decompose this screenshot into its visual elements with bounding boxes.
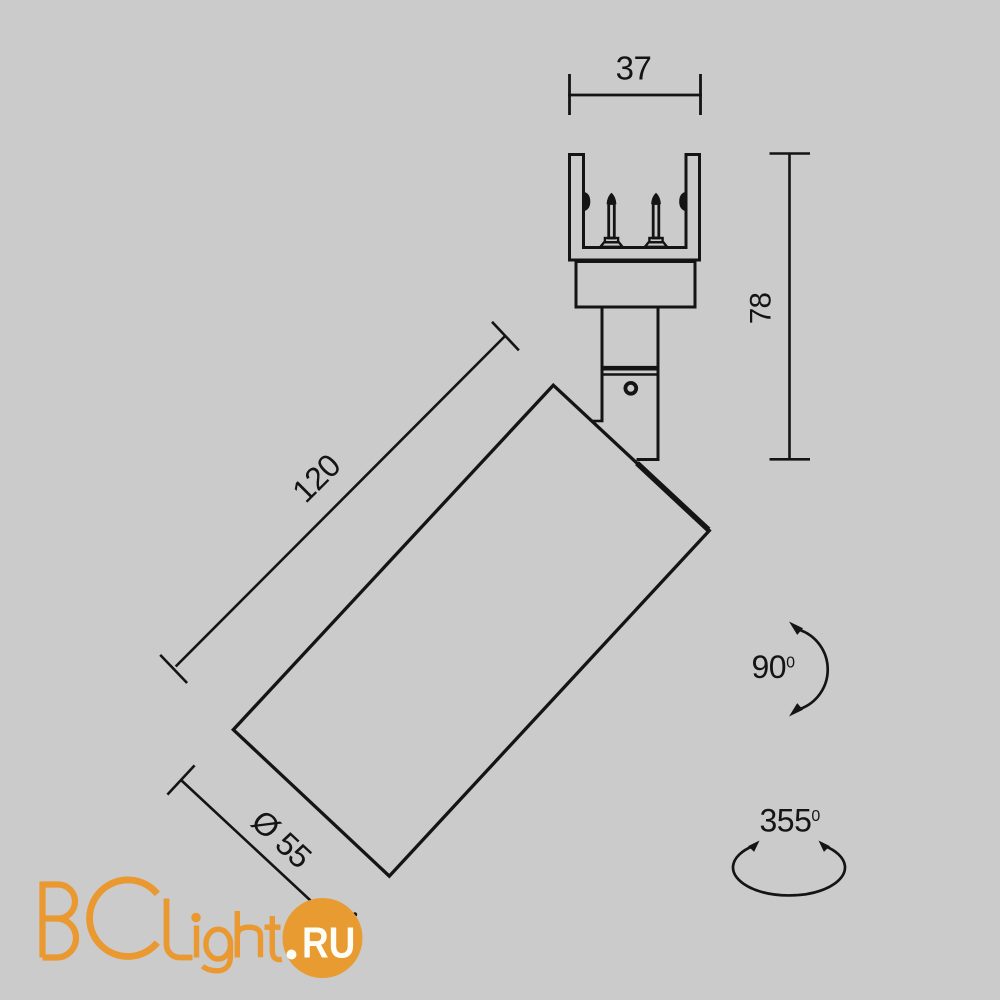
svg-text:RU: RU	[302, 917, 355, 967]
svg-text:37: 37	[616, 50, 652, 87]
svg-text:78: 78	[745, 293, 778, 325]
svg-text:3550: 3550	[760, 803, 821, 839]
